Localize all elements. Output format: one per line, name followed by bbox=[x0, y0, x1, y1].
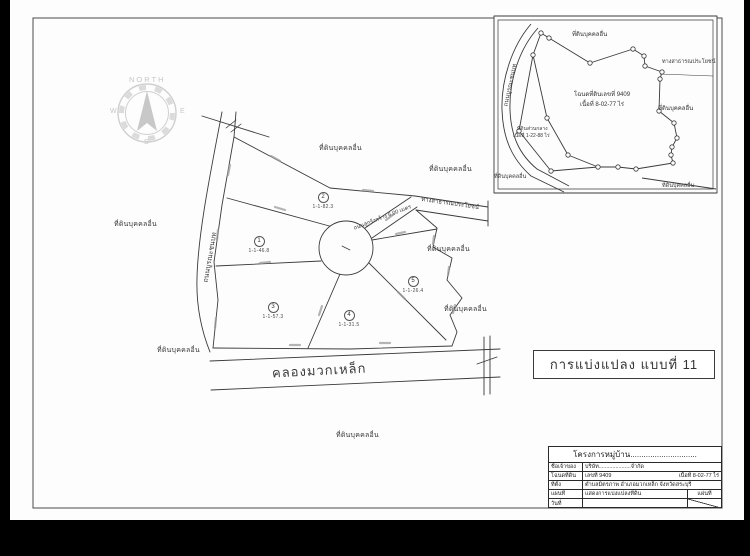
other-land-label: ที่ดินบุคคลอื่น bbox=[658, 103, 693, 113]
north-compass-icon bbox=[118, 84, 176, 142]
other-land-label: ที่ดินบุคคลอื่น bbox=[494, 173, 526, 181]
title-block-row-deed: โฉนดที่ดิน เลขที่ 9409 เนื้อที่ 8-02-77 … bbox=[549, 472, 721, 481]
canal-break-lines bbox=[477, 336, 497, 395]
compass-north-label: NORTH bbox=[129, 75, 166, 84]
tb-date-label: วันที่ bbox=[549, 499, 583, 508]
plot-label-5: 5 1-1-26.4 bbox=[398, 276, 428, 294]
other-land-label: ที่ดินบุคคลอื่น bbox=[427, 244, 470, 255]
tb-sheet-number-cell: แผ่นที่ bbox=[687, 490, 721, 498]
inset-common-land-area: เนื้อที่ 1-22-88 ไร่ bbox=[513, 132, 550, 140]
divider-5 bbox=[372, 229, 437, 240]
title-block-row-owner: ชื่อเจ้าของ บริษัท.....................จ… bbox=[549, 463, 721, 472]
plot-area: 1-1-57.3 bbox=[262, 314, 283, 320]
parcel-south-boundary bbox=[213, 346, 452, 349]
plot-area: 1-1-46.8 bbox=[248, 248, 269, 254]
tb-deed-area: เนื้อที่ 8-02-77 ไร่ bbox=[679, 472, 719, 480]
plot-area: 1-1-31.5 bbox=[338, 322, 359, 328]
tb-owner-value: บริษัท.....................จำกัด bbox=[585, 463, 644, 471]
other-land-label: ที่ดินบุคคลอื่น bbox=[319, 143, 362, 154]
other-land-label: ที่ดินบุคคลอื่น bbox=[662, 182, 694, 190]
tb-owner-label: ชื่อเจ้าของ bbox=[549, 463, 583, 471]
tb-plan-label: แผนที่ bbox=[549, 490, 583, 498]
plan-type-box: การแบ่งแปลง แบบที่ 11 bbox=[533, 350, 715, 379]
other-land-label: ที่ดินบุคคลอื่น bbox=[444, 304, 487, 315]
plot-area: 1-1-26.4 bbox=[402, 288, 423, 294]
inset-deed-area: เนื้อที่ 8-02-77 ไร่ bbox=[580, 99, 624, 109]
plot-number: 4 bbox=[344, 310, 355, 321]
other-land-label: ที่ดินบุคคลอื่น bbox=[572, 29, 607, 39]
other-land-label: ที่ดินบุคคลอื่น bbox=[114, 219, 157, 230]
plot-area: 1-1-82.3 bbox=[312, 204, 333, 210]
tb-location-value: ตำบลมิตรภาพ อำเภอมวกเหล็ก จังหวัดสระบุรี bbox=[585, 481, 691, 489]
title-block-row-location: ที่ตั้ง ตำบลมิตรภาพ อำเภอมวกเหล็ก จังหวั… bbox=[549, 481, 721, 490]
compass-west-label: W bbox=[110, 108, 117, 115]
tb-sheet-fraction-cell bbox=[687, 499, 721, 508]
plot-number: 2 bbox=[318, 192, 329, 203]
divider-4 bbox=[368, 262, 446, 340]
plot-label-2: 2 1-1-82.3 bbox=[308, 192, 338, 210]
compass-south-label: S bbox=[144, 139, 149, 146]
title-block-row-plan: แผนที่ แสดงการแบ่งแปลงที่ดิน แผ่นที่ bbox=[549, 490, 721, 499]
tb-deed-label: โฉนดที่ดิน bbox=[549, 472, 583, 480]
scanned-survey-page: { "compass": {"north": "NORTH", "west": … bbox=[0, 0, 750, 556]
tb-plan-value: แสดงการแบ่งแปลงที่ดิน bbox=[585, 490, 641, 498]
plot-number: 3 bbox=[268, 302, 279, 313]
title-block: โครงการหมู่บ้าน.........................… bbox=[548, 446, 722, 508]
plot-label-4: 4 1-1-31.5 bbox=[334, 310, 364, 328]
other-land-label: ที่ดินบุคคลอื่น bbox=[157, 345, 200, 356]
title-block-row-date: วันที่ bbox=[549, 499, 721, 508]
inset-public-road-label: ทางสาธารณประโยชน์ bbox=[662, 58, 715, 66]
plot-label-1: 1 1-1-46.8 bbox=[244, 236, 274, 254]
tb-deed-number: เลขที่ 9409 bbox=[585, 472, 611, 480]
left-road-east-line bbox=[234, 112, 236, 137]
title-block-header: โครงการหมู่บ้าน.........................… bbox=[549, 447, 721, 463]
other-land-label: ที่ดินบุคคลอื่น bbox=[336, 430, 379, 441]
plot-number: 1 bbox=[254, 236, 265, 247]
plot-number: 5 bbox=[408, 276, 419, 287]
other-land-label: ที่ดินบุคคลอื่น bbox=[429, 164, 472, 175]
tb-location-label: ที่ตั้ง bbox=[549, 481, 583, 489]
plot-label-3: 3 1-1-57.3 bbox=[258, 302, 288, 320]
inset-deed-number: โฉนดที่ดินเลขที่ 9409 bbox=[574, 89, 630, 99]
compass-east-label: E bbox=[180, 108, 185, 115]
